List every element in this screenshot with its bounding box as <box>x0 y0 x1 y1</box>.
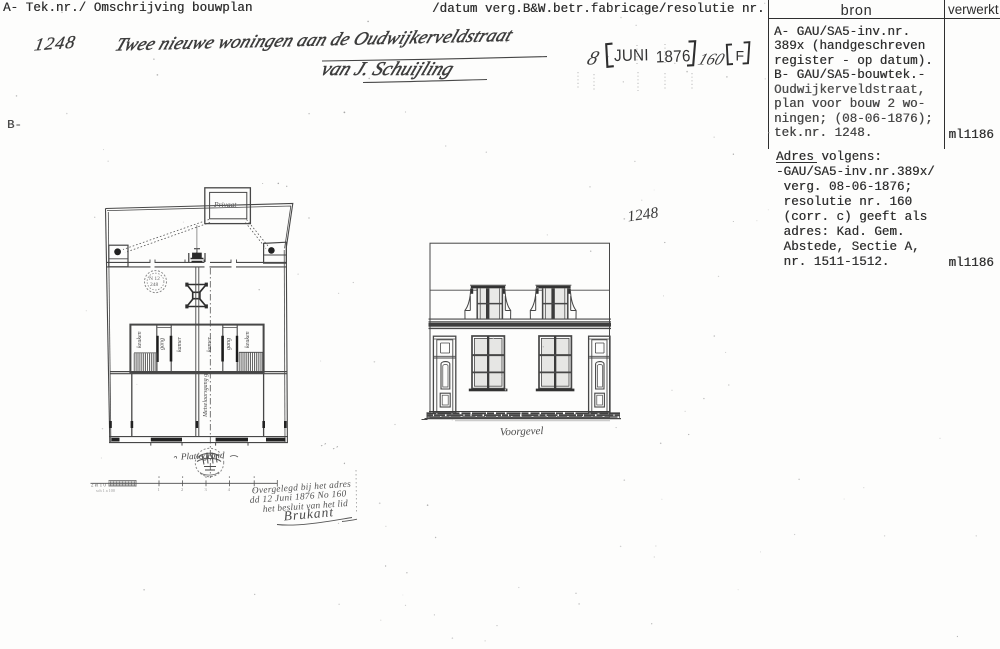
svg-text:248: 248 <box>150 282 159 288</box>
svg-text:Voorgevel: Voorgevel <box>500 425 544 439</box>
svg-text:Brukant: Brukant <box>283 504 335 523</box>
svg-text:gang: gang <box>160 338 166 350</box>
svg-text:sch 1 a 100: sch 1 a 100 <box>96 488 115 493</box>
svg-text:JUNI: JUNI <box>614 47 649 65</box>
svg-text:1248: 1248 <box>626 204 659 225</box>
svg-text:kamer: kamer <box>177 336 183 352</box>
svg-text:kamer: kamer <box>207 336 213 352</box>
svg-text:Privaat: Privaat <box>213 200 237 209</box>
svg-text:2: 2 <box>181 487 183 492</box>
svg-text:1876: 1876 <box>656 48 691 67</box>
svg-text:3: 3 <box>205 487 208 492</box>
svg-text:1248: 1248 <box>33 32 78 54</box>
svg-text:keuken: keuken <box>245 331 251 348</box>
svg-text:160: 160 <box>696 50 728 68</box>
svg-text:gang: gang <box>226 338 232 350</box>
svg-text:1: 1 <box>158 487 160 492</box>
svg-text:8: 8 <box>584 48 602 69</box>
svg-text:F: F <box>736 48 745 64</box>
svg-text:4: 4 <box>228 487 231 492</box>
svg-text:Twee nieuwe woningen aan de Ou: Twee nieuwe woningen aan de Oudwijkervel… <box>112 26 516 56</box>
svg-text:van J. Schuijling: van J. Schuijling <box>318 59 457 80</box>
svg-text:keuken: keuken <box>137 331 143 348</box>
svg-text:Metselaarsgang g.: Metselaarsgang g. <box>203 372 209 418</box>
